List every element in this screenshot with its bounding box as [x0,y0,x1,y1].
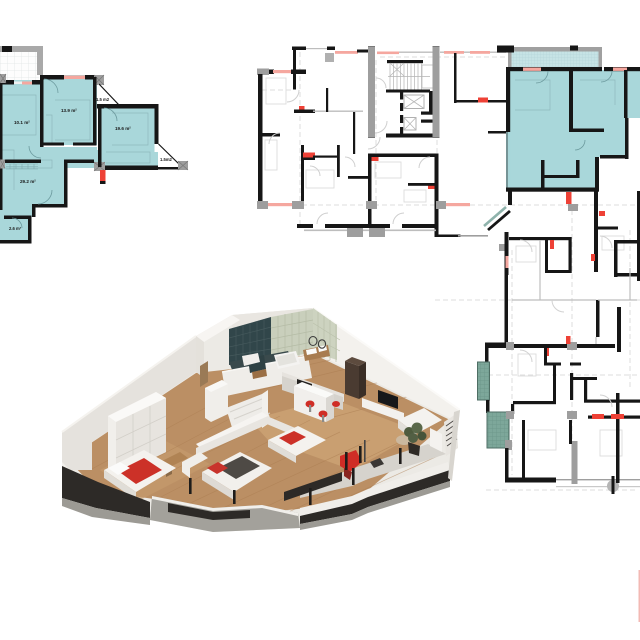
svg-text:13.9 m²: 13.9 m² [61,108,77,113]
svg-text:19.6 m²: 19.6 m² [115,126,131,131]
svg-text:1.5m2: 1.5m2 [160,157,173,162]
svg-text:1.5 m2: 1.5 m2 [96,97,110,102]
svg-text:2.6 m²: 2.6 m² [9,226,22,231]
svg-text:29.2 m²: 29.2 m² [20,179,36,184]
svg-text:10.1 m²: 10.1 m² [14,120,30,125]
